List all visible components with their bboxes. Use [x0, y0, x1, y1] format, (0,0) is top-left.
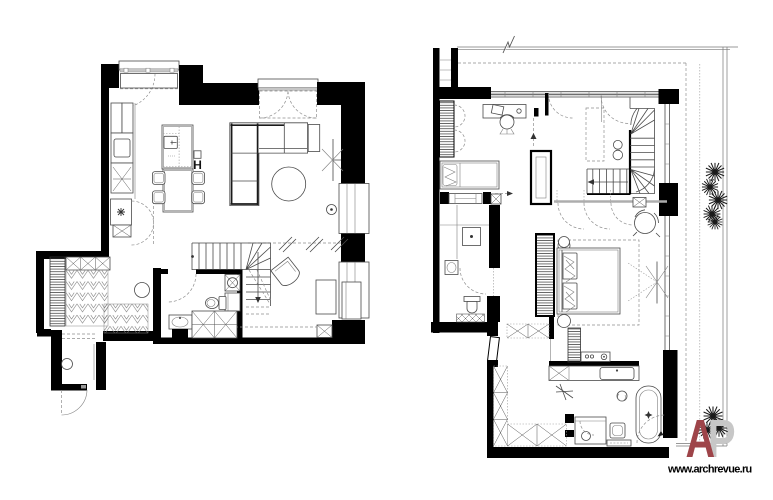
- svg-text:www.archrevue.ru: www.archrevue.ru: [667, 464, 752, 476]
- svg-text:A: A: [686, 410, 716, 470]
